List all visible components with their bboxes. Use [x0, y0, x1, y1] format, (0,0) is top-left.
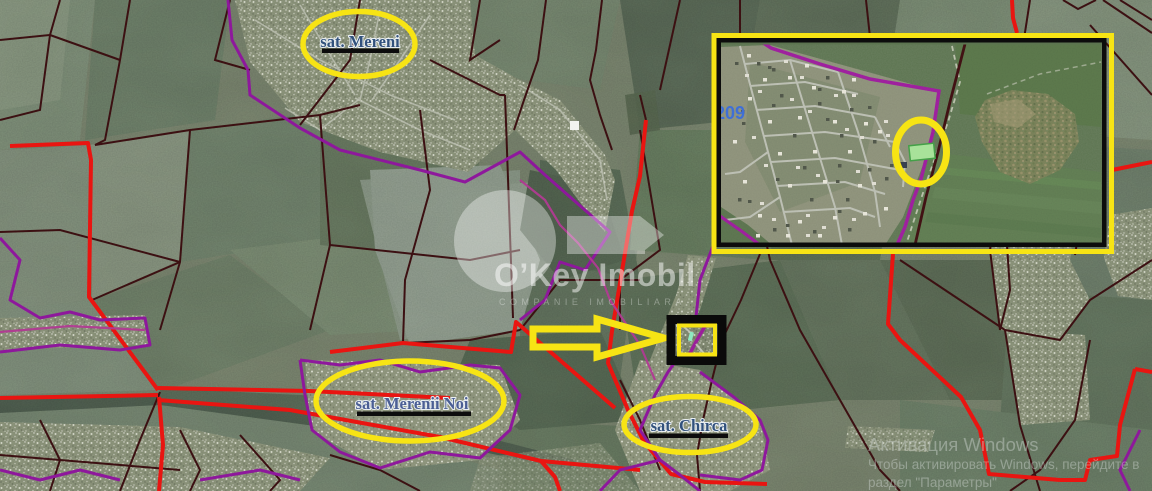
svg-text:Активация Windows: Активация Windows: [868, 434, 1039, 455]
svg-text:sat. Merenii Noi: sat. Merenii Noi: [356, 394, 469, 413]
svg-text:sat. Chirca: sat. Chirca: [651, 416, 728, 435]
svg-text:sat. Mereni: sat. Mereni: [320, 32, 400, 51]
svg-text:раздел "Параметры": раздел "Параметры": [868, 475, 997, 490]
svg-text:COMPANIE IMOBILIARA: COMPANIE IMOBILIARA: [499, 297, 686, 307]
svg-text:Чтобы активировать Windows, пе: Чтобы активировать Windows, перейдите в: [868, 457, 1139, 472]
svg-text:O’Key Imobil: O’Key Imobil: [494, 257, 696, 293]
